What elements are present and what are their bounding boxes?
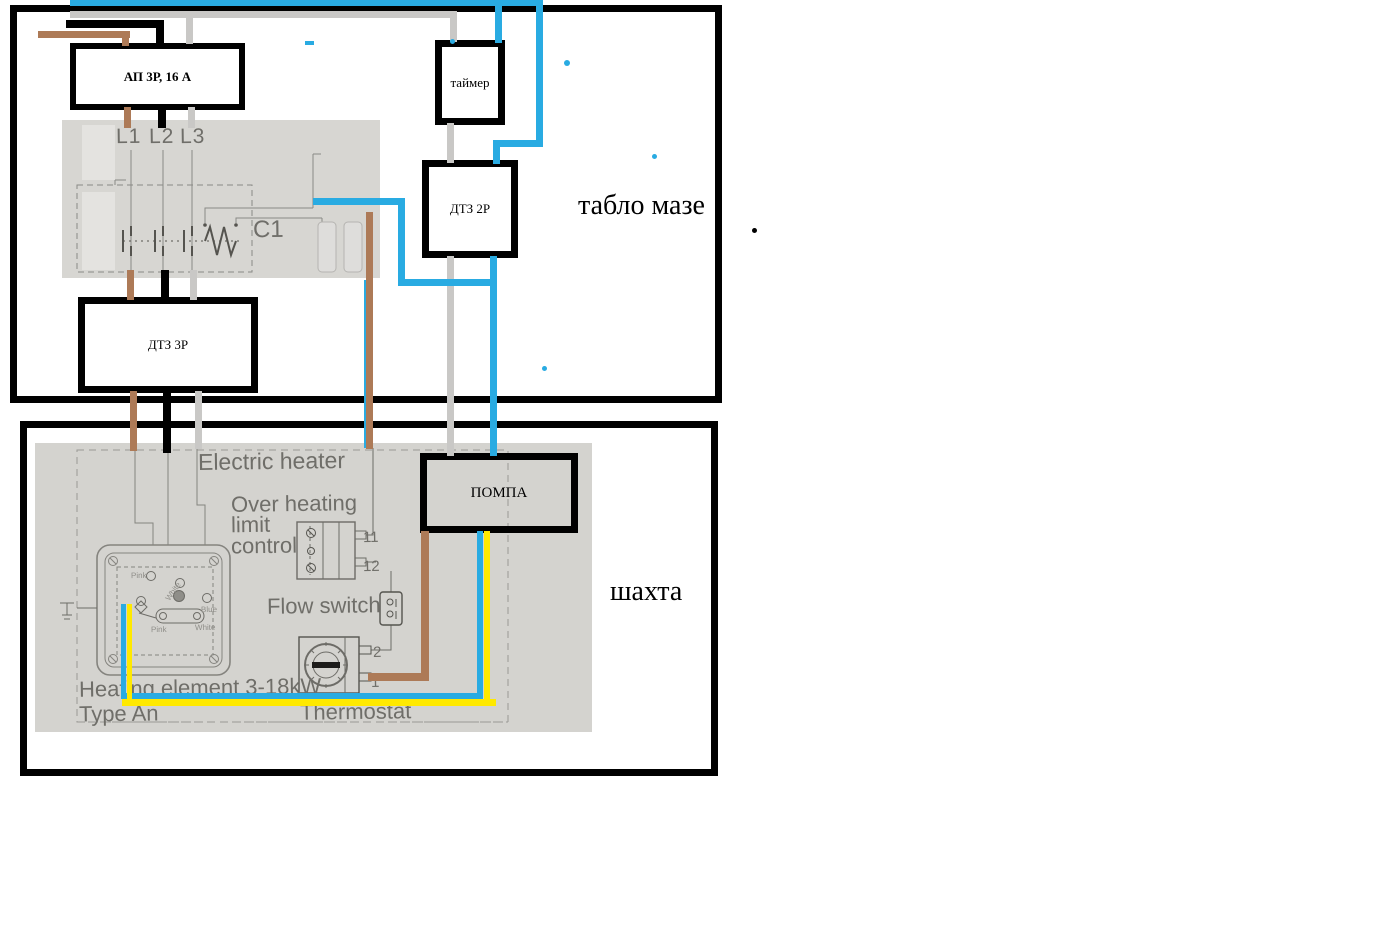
wire-brown-feed-h — [38, 31, 130, 38]
wire-blue-coil-h — [313, 198, 405, 205]
dtz-3p-box: ДТЗ 3Р — [78, 297, 258, 393]
wire-gray-contactor-to-dtz3p — [190, 270, 197, 300]
wire-blue-junction-h — [398, 279, 495, 286]
wire-yellow-pump-down — [484, 531, 490, 705]
wire-brown-contactor-to-dtz3p — [127, 270, 134, 300]
wire-brown-dtz3p-to-heater — [130, 391, 137, 451]
pump-box: ПОМПА — [420, 453, 578, 533]
wire-brown-pump-to-thermostat-v — [421, 531, 429, 681]
zone-label-tablo-maze: табло мазе — [578, 190, 705, 222]
dtz-3p-label: ДТЗ 3Р — [148, 337, 188, 353]
wire-brown-breaker-to-contactor — [124, 107, 131, 128]
wire-gray-breaker-to-contactor — [188, 107, 195, 128]
wire-gray-timer-to-dtz2p — [447, 123, 454, 163]
wire-black-contactor-to-dtz3p — [161, 270, 169, 300]
wire-blue-pump-down — [477, 531, 483, 699]
blue-dot-3 — [542, 366, 547, 371]
wire-black-feed-h — [66, 20, 164, 28]
wire-yellow-to-plate — [127, 604, 132, 702]
wiring-diagram-canvas: L1 L2 L3 C1 — [0, 0, 1377, 948]
blue-dot-1 — [564, 60, 570, 66]
wire-gray-feed-v — [186, 11, 193, 44]
blue-dot-2 — [652, 154, 657, 159]
wire-gray-dtz2p-to-pump — [447, 256, 454, 456]
wire-black-breaker-to-contactor — [158, 107, 166, 128]
wire-gray-dtz3p-to-heater — [195, 391, 202, 449]
wire-blue-into-dtz2p — [493, 140, 500, 164]
breaker-label: АП 3Р, 16 А — [124, 69, 191, 85]
blue-dash-mark — [305, 41, 314, 45]
wire-blue-right-drop — [536, 0, 543, 147]
black-dot — [752, 228, 757, 233]
dtz-2p-box: ДТЗ 2Р — [422, 160, 518, 258]
wire-brown-coil-to-limit-control — [366, 212, 373, 449]
wire-gray-to-timer — [450, 11, 457, 42]
wire-blue-jog-h — [493, 140, 543, 147]
timer-label: таймер — [450, 75, 489, 91]
timer-box: таймер — [435, 40, 505, 125]
blue-dot-timer — [450, 39, 455, 44]
zone-label-shahta: шахта — [610, 576, 682, 608]
wire-blue-to-plate — [121, 604, 126, 696]
breaker-box: АП 3Р, 16 А — [70, 43, 245, 110]
wire-yellow-bottom-h — [122, 699, 496, 706]
wire-blue-top-h — [70, 0, 543, 6]
pump-label: ПОМПА — [471, 485, 528, 502]
wire-brown-pump-to-thermostat-h — [368, 673, 429, 681]
wire-blue-coil-v — [398, 198, 405, 286]
wire-brown-feed-v — [122, 31, 129, 46]
wire-black-feed-v — [156, 20, 164, 46]
wire-gray-feed-h — [70, 11, 456, 18]
wire-black-dtz3p-to-heater — [163, 391, 171, 453]
wire-blue-dtz2p-to-pump — [490, 256, 497, 456]
wire-blue-to-timer — [495, 3, 502, 43]
dtz-2p-label: ДТЗ 2Р — [450, 201, 490, 217]
